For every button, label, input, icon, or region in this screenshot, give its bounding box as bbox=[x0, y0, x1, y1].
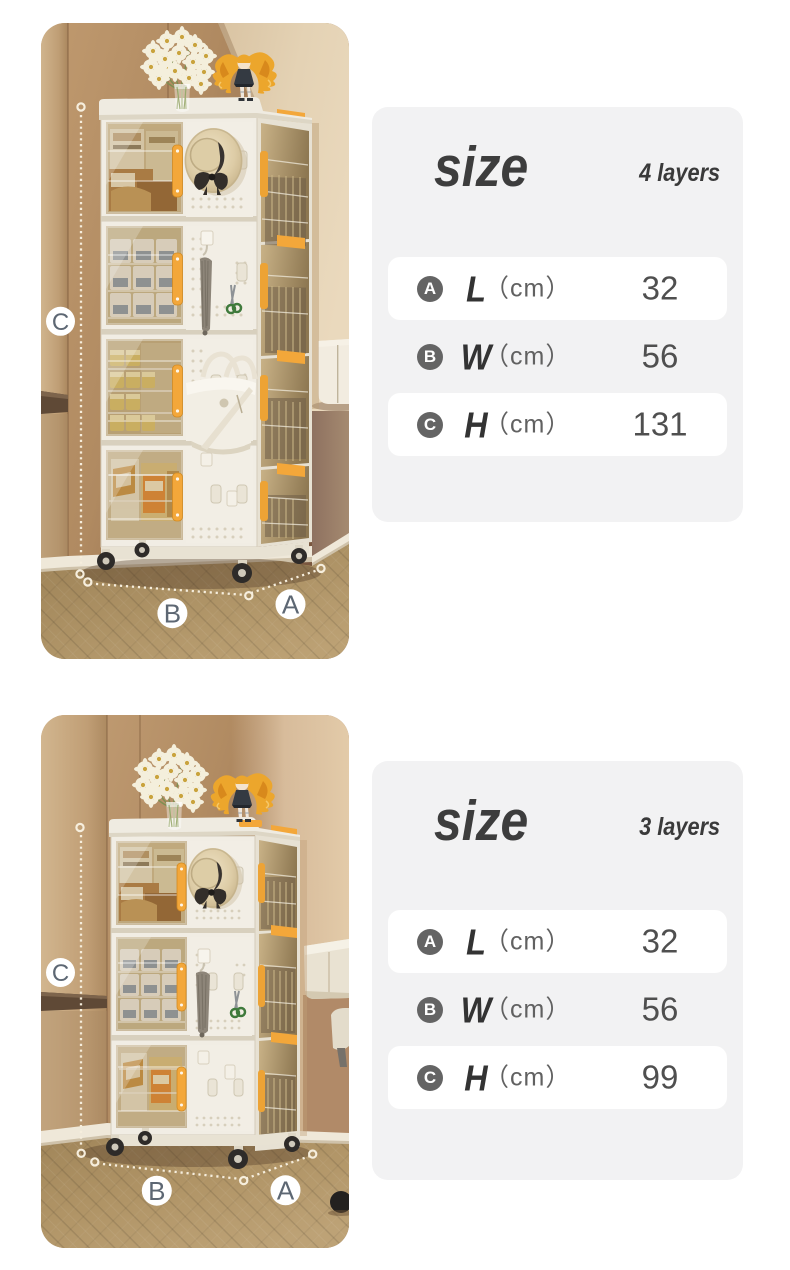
svg-text:C: C bbox=[52, 309, 69, 336]
svg-text:A: A bbox=[277, 1176, 295, 1206]
svg-text:B: B bbox=[164, 599, 181, 629]
svg-text:A: A bbox=[282, 590, 300, 620]
svg-text:C: C bbox=[52, 960, 69, 987]
svg-text:B: B bbox=[148, 1176, 165, 1206]
